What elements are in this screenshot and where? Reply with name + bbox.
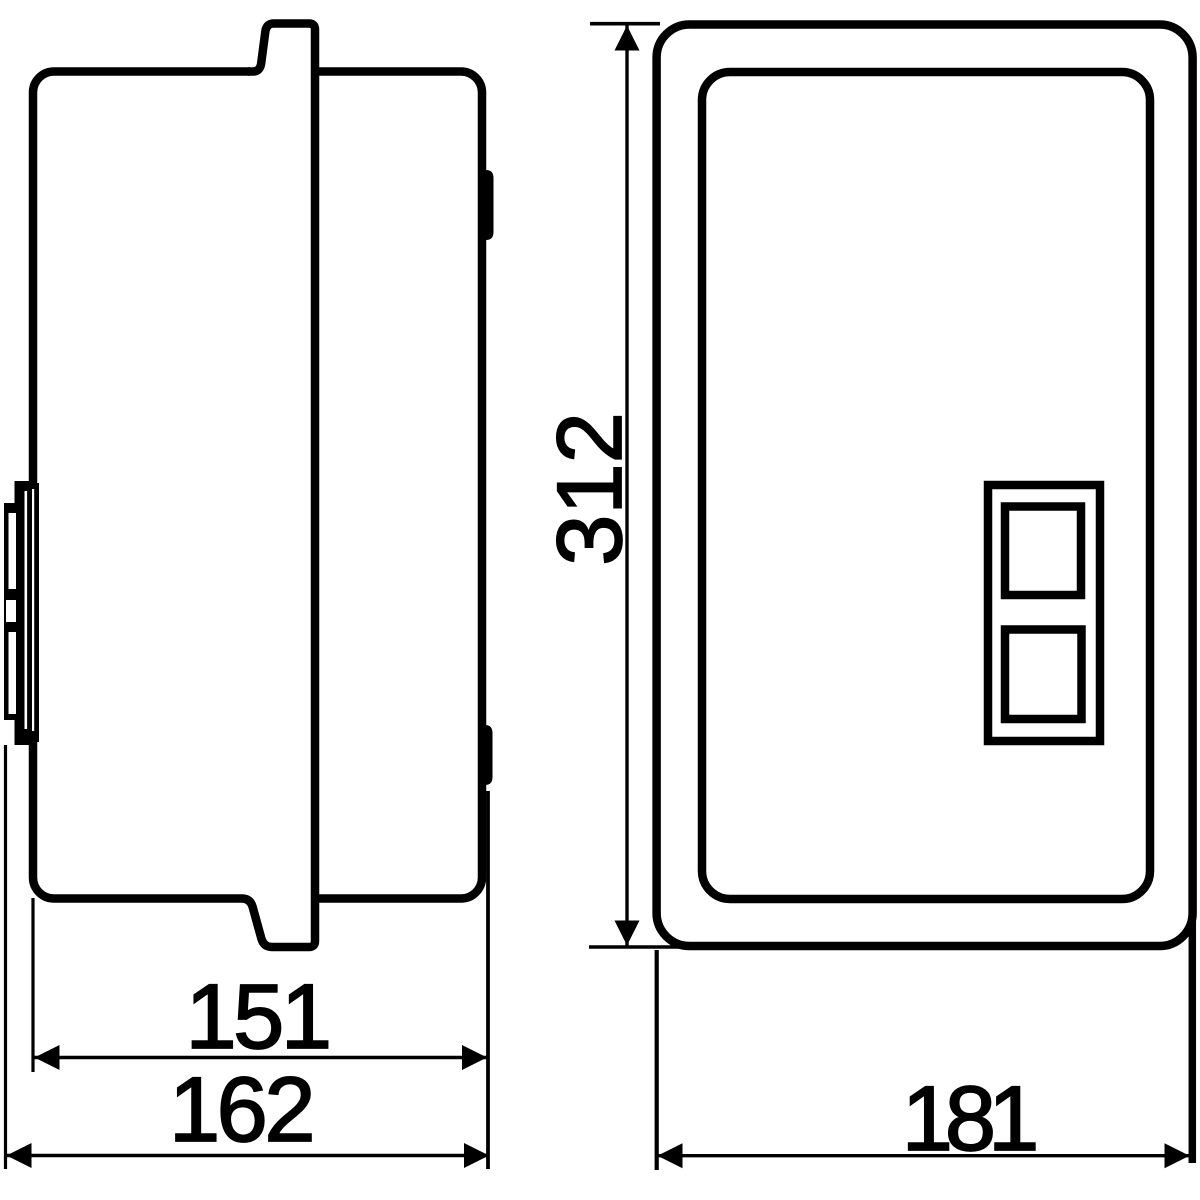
svg-text:181: 181 <box>902 1068 1035 1170</box>
svg-text:312: 312 <box>539 412 641 566</box>
svg-text:151: 151 <box>186 966 329 1068</box>
svg-text:162: 162 <box>169 1059 312 1161</box>
